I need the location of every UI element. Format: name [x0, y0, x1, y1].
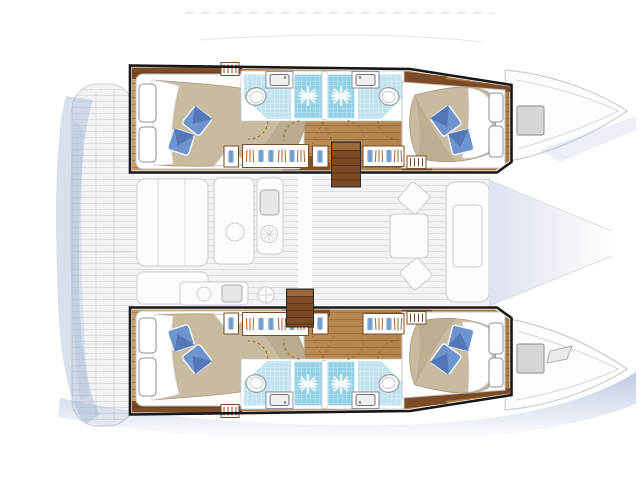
- upper-hull-companionway-stairs: [332, 142, 361, 187]
- deck-hatch: [517, 106, 544, 135]
- upper-hull-accommodation: [130, 63, 512, 173]
- deck-hatch: [517, 344, 544, 373]
- nav-seat: [390, 214, 428, 258]
- floor-plan-canvas: [0, 0, 640, 479]
- cockpit-sofa: [137, 179, 208, 266]
- catamaran-layout-diagram: [0, 0, 640, 479]
- lower-hull-companionway-stairs: [287, 289, 314, 327]
- lower-hull-accommodation: [130, 308, 512, 418]
- foredeck-trampoline: [489, 180, 612, 306]
- galley-counter: [214, 178, 254, 264]
- galley-sink: [226, 223, 244, 241]
- island-sink: [260, 190, 279, 215]
- dinette-table: [453, 205, 482, 267]
- saloon-and-cockpit: [131, 176, 498, 306]
